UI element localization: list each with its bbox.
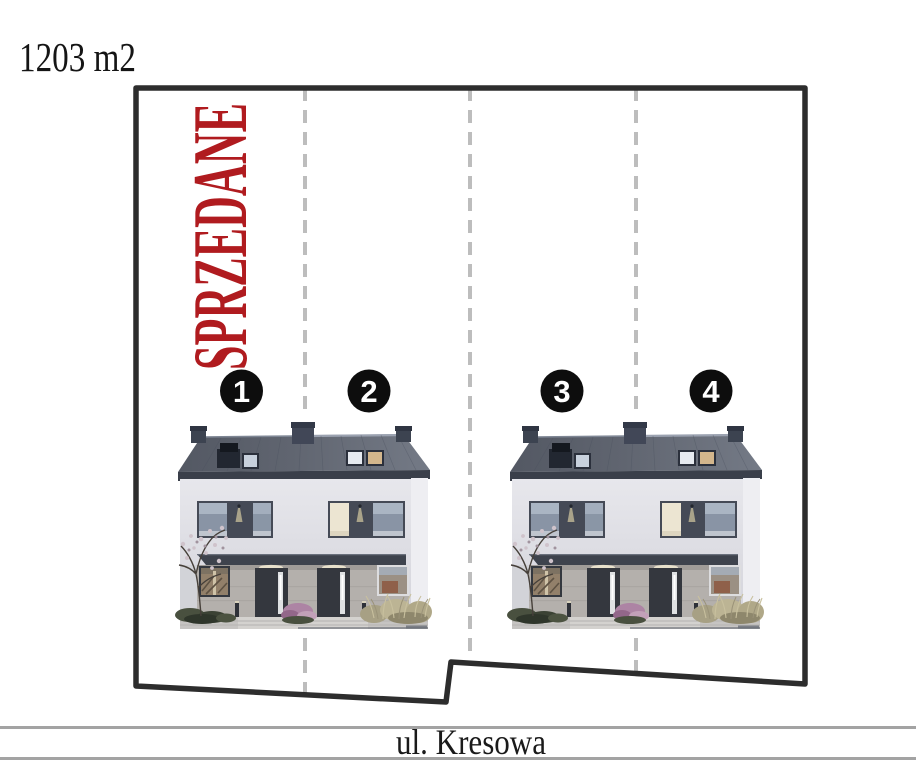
svg-text:1: 1 [233, 374, 250, 409]
svg-text:2: 2 [360, 374, 377, 409]
svg-text:3: 3 [553, 374, 570, 409]
svg-text:ul. Kresowa: ul. Kresowa [396, 722, 546, 762]
svg-text:SPRZEDANE: SPRZEDANE [177, 103, 263, 370]
svg-text:1203 m2: 1203 m2 [19, 34, 136, 80]
svg-text:4: 4 [702, 374, 720, 409]
